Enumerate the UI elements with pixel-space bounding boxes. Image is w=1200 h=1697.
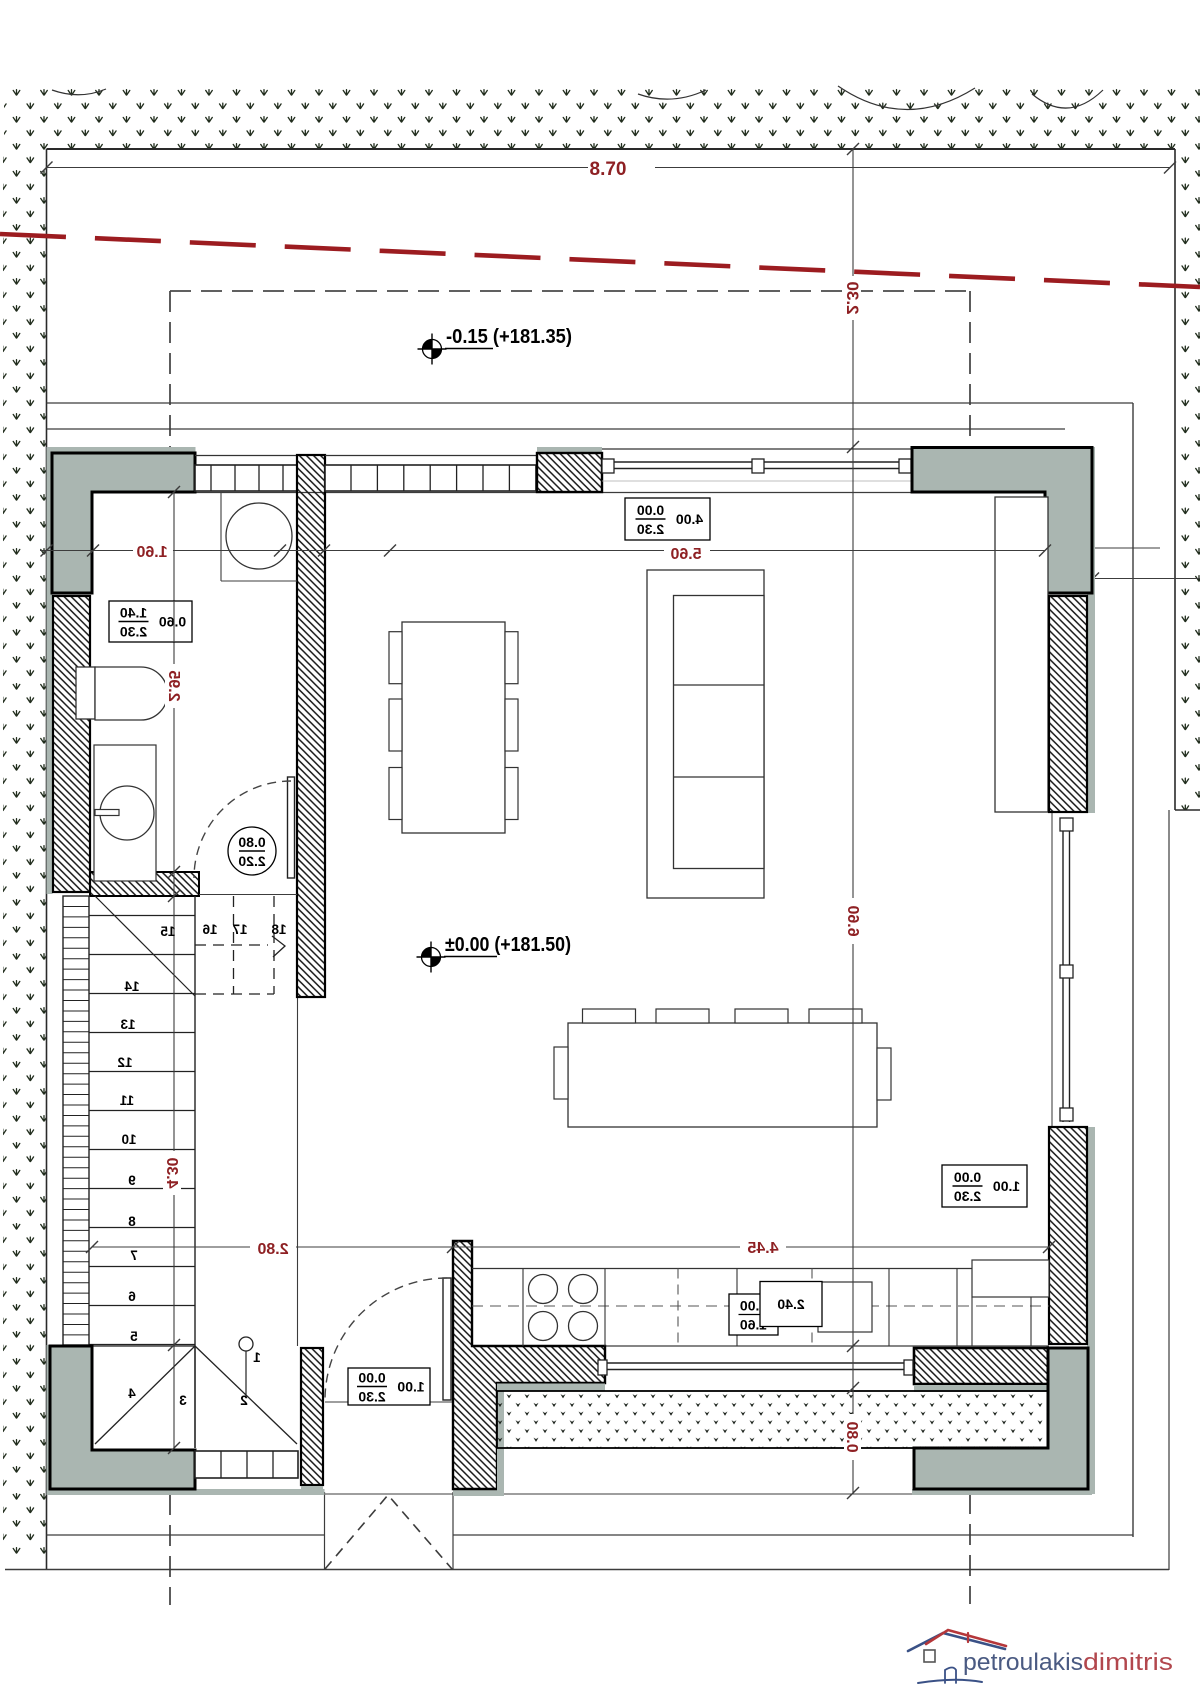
svg-text:5: 5 — [130, 1329, 138, 1344]
svg-text:7: 7 — [130, 1248, 138, 1263]
svg-text:1.00: 1.00 — [993, 1178, 1020, 1194]
svg-text:18: 18 — [271, 922, 287, 937]
svg-text:6.60: 6.60 — [844, 905, 861, 936]
svg-text:10: 10 — [121, 1132, 136, 1147]
svg-text:0.00: 0.00 — [637, 502, 664, 518]
svg-text:2.30: 2.30 — [358, 1389, 385, 1405]
svg-text:11: 11 — [119, 1093, 134, 1108]
svg-text:-0.15 (+181.35): -0.15 (+181.35) — [446, 326, 572, 348]
svg-text:1: 1 — [253, 1350, 261, 1365]
svg-text:1.60: 1.60 — [136, 544, 167, 561]
svg-text:4.30: 4.30 — [163, 1157, 180, 1188]
svg-text:13: 13 — [120, 1017, 136, 1032]
svg-text:4.45: 4.45 — [747, 1240, 778, 1257]
svg-text:8.70: 8.70 — [590, 159, 627, 180]
svg-text:4: 4 — [128, 1386, 136, 1401]
svg-text:16: 16 — [202, 922, 218, 937]
svg-text:2.80: 2.80 — [257, 1241, 288, 1258]
svg-text:15: 15 — [160, 924, 176, 939]
svg-text:2.30: 2.30 — [954, 1188, 981, 1204]
svg-text:4.00: 4.00 — [676, 511, 703, 527]
svg-text:1.40: 1.40 — [120, 605, 147, 621]
svg-text:2.30: 2.30 — [637, 521, 664, 537]
svg-text:17: 17 — [232, 922, 247, 937]
svg-text:6: 6 — [128, 1289, 136, 1304]
svg-text:5.60: 5.60 — [670, 546, 701, 563]
svg-text:±0.00 (+181.50): ±0.00 (+181.50) — [445, 934, 571, 956]
svg-text:0.00: 0.00 — [954, 1169, 981, 1185]
svg-text:petroulakis: petroulakis — [963, 1649, 1083, 1676]
svg-text:2.95: 2.95 — [165, 670, 182, 701]
svg-text:12: 12 — [117, 1055, 132, 1070]
svg-text:9: 9 — [128, 1173, 136, 1188]
svg-text:0.80: 0.80 — [238, 834, 265, 850]
svg-text:2.30: 2.30 — [120, 624, 147, 640]
svg-text:2.30: 2.30 — [843, 281, 862, 314]
svg-text:1.00: 1.00 — [397, 1379, 424, 1395]
svg-text:0.60: 0.60 — [159, 614, 186, 630]
svg-text:2.40: 2.40 — [777, 1296, 804, 1312]
svg-text:0.80: 0.80 — [843, 1421, 860, 1452]
svg-text:8: 8 — [128, 1214, 136, 1229]
svg-text:0.00: 0.00 — [358, 1370, 385, 1386]
svg-text:2.20: 2.20 — [238, 853, 265, 869]
svg-text:dimitris: dimitris — [1083, 1649, 1173, 1676]
svg-text:2: 2 — [240, 1393, 248, 1408]
svg-text:14: 14 — [124, 979, 140, 994]
svg-text:3: 3 — [179, 1393, 187, 1408]
